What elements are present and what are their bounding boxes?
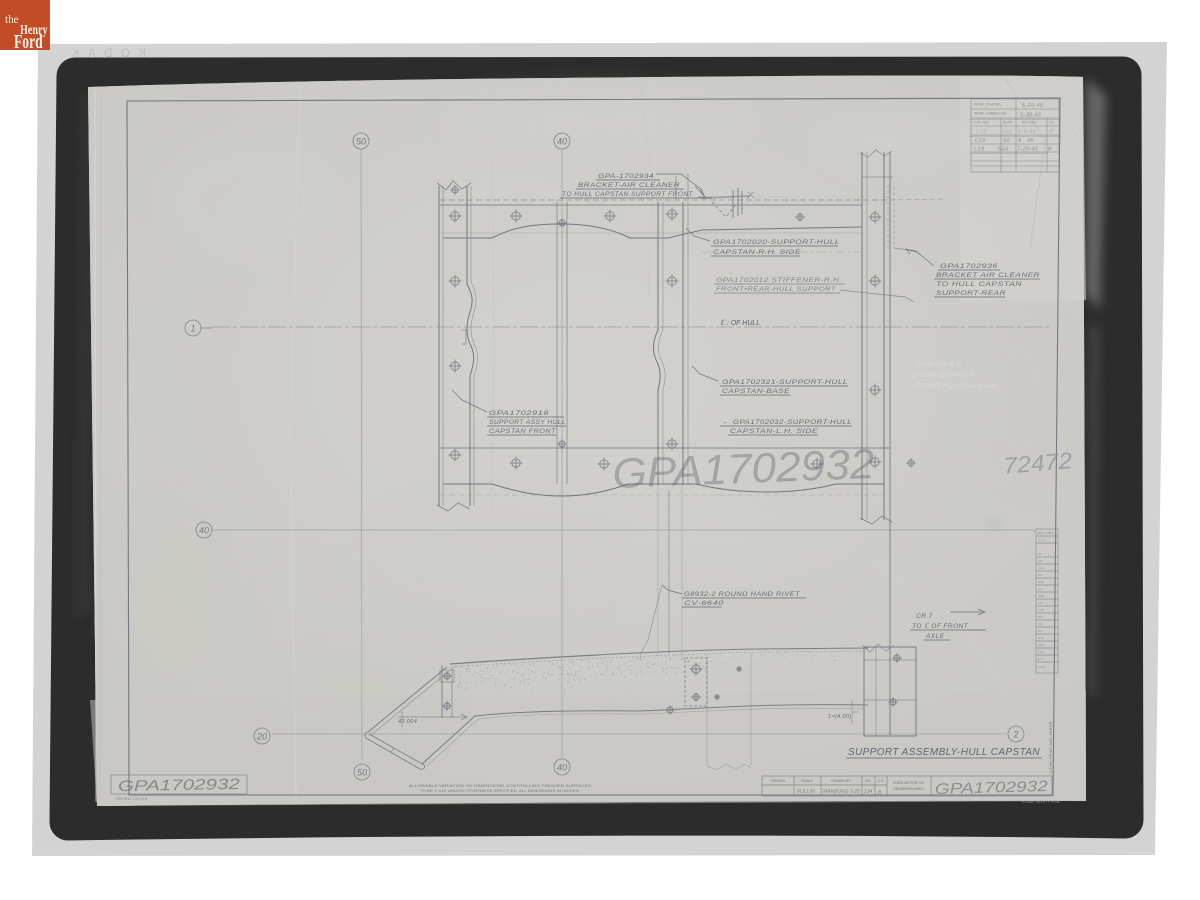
svg-text:SUPPORT ASSY HULL: SUPPORT ASSY HULL: [489, 419, 566, 426]
svg-text:9-14: 9-14: [1038, 636, 1044, 640]
svg-text:GPA 9012 1-20-45-R: GPA 9012 1-20-45-R: [116, 797, 148, 801]
svg-text:BRACKET AIR CLEANER: BRACKET AIR CLEANER: [936, 272, 1040, 279]
svg-text:50: 50: [357, 768, 367, 778]
svg-text:7-20-45: 7-20-45: [1017, 147, 1039, 153]
svg-text:GPA1702020-SUPPORT-HULL: GPA1702020-SUPPORT-HULL: [713, 239, 840, 246]
svg-text:522: 522: [1003, 129, 1014, 135]
svg-text:20: 20: [256, 732, 267, 742]
svg-text:CR.7: CR.7: [916, 613, 933, 620]
svg-text:← GPA1702032-SUPPORT-HULL: ← GPA1702032-SUPPORT-HULL: [722, 419, 852, 426]
svg-text:TO HULL CAPSTAN: TO HULL CAPSTAN: [936, 281, 1022, 288]
svg-text:50: 50: [356, 137, 366, 147]
svg-text:12-7: 12-7: [1038, 657, 1044, 661]
svg-text:5-25: 5-25: [1038, 580, 1044, 584]
svg-text:2: 2: [1012, 730, 1018, 740]
svg-text:L19: L19: [976, 129, 986, 135]
svg-text:SUPPORT-REAR: SUPPORT-REAR: [936, 290, 1006, 297]
svg-text:CK.: CK.: [1049, 121, 1055, 125]
svg-text:GPA-1702934: GPA-1702934: [598, 173, 654, 180]
svg-text:GPA1702 S-R: GPA1702 S-R: [916, 361, 962, 368]
svg-text:36: 36: [1038, 552, 1042, 556]
svg-text:5-9: 5-9: [1038, 573, 1043, 577]
svg-text:TO BE ± .010 UNLESS OTHERWISE: TO BE ± .010 UNLESS OTHERWISE SPECIFIED.…: [420, 789, 580, 793]
svg-text:BRACKET-AIR CLEANER: BRACKET-AIR CLEANER: [578, 182, 680, 189]
svg-text:CV-6640: CV-6640: [684, 600, 724, 607]
svg-text:5-30-45: 5-30-45: [1020, 113, 1042, 119]
svg-text:CAPSTAN-L.H. SIDE: CAPSTAN-L.H. SIDE: [730, 428, 818, 435]
svg-text:40: 40: [557, 137, 567, 147]
svg-text:GPA1702932: GPA1702932: [935, 778, 1049, 798]
svg-text:7-20: 7-20: [1038, 608, 1044, 612]
svg-text:5-25-45: 5-25-45: [1022, 103, 1044, 109]
svg-text:DRAWN BY: DRAWN BY: [831, 779, 851, 783]
svg-text:6-9-45: 6-9-45: [1018, 129, 1037, 135]
svg-text:1≈(4.00): 1≈(4.00): [828, 714, 852, 720]
svg-text:1: 1: [190, 324, 195, 334]
svg-text:B: B: [1048, 147, 1052, 153]
svg-text:REV. DATE: REV. DATE: [1038, 531, 1053, 535]
svg-text:SCALE: SCALE: [801, 779, 813, 783]
svg-text:STEAM SUPPORT: STEAM SUPPORT: [912, 372, 974, 379]
svg-text:CAPSTAN-R.H. SIDE: CAPSTAN-R.H. SIDE: [713, 249, 801, 256]
svg-text:AXLE: AXLE: [925, 633, 945, 640]
svg-text:FULL/M: FULL/M: [797, 789, 816, 795]
svg-text:ALLOWABLE VARIATION ON DIMENSI: ALLOWABLE VARIATION ON DIMENSIONS CONTRO…: [409, 784, 592, 788]
svg-text:GPA1702321-SUPPORT-HULL: GPA1702321-SUPPORT-HULL: [722, 379, 848, 386]
svg-text:WORK COMPLETED: WORK COMPLETED: [974, 112, 1007, 116]
svg-text:42.004: 42.004: [398, 719, 417, 725]
svg-text:TO HULL CAPSTAN SUPPORT FRONT: TO HULL CAPSTAN SUPPORT FRONT: [562, 191, 694, 198]
svg-text:FRONT HULL CAPSTAN: FRONT HULL CAPSTAN: [916, 383, 997, 390]
svg-text:KODAK SAFETY FILM: KODAK SAFETY FILM: [1022, 800, 1060, 804]
svg-text:1-4-5: 1-4-5: [1038, 665, 1045, 669]
svg-text:6-30: 6-30: [1038, 594, 1044, 598]
svg-text:R: R: [1049, 129, 1053, 135]
svg-text:CHG. REF: CHG. REF: [973, 121, 989, 125]
svg-text:GPA1702936: GPA1702936: [940, 263, 998, 270]
svg-text:ℂ : OF HULL: ℂ : OF HULL: [720, 319, 760, 327]
svg-text:134: 134: [864, 789, 873, 795]
svg-text:L19: L19: [974, 147, 984, 153]
svg-text:LITHO•PRINT ANN ARBOR: LITHO•PRINT ANN ARBOR: [1049, 721, 1053, 773]
svg-text:GPA1702918: GPA1702918: [489, 410, 549, 417]
svg-text:9-1: 9-1: [1038, 629, 1043, 633]
svg-text:CAPSTAN-BASE: CAPSTAN-BASE: [722, 388, 790, 395]
svg-text:CH.: CH.: [865, 779, 871, 783]
svg-text:DEARBORN MICH.: DEARBORN MICH.: [893, 787, 925, 791]
svg-text:L19: L19: [975, 138, 985, 144]
svg-text:GPA1702932: GPA1702932: [118, 776, 241, 795]
svg-text:7-8: 7-8: [1038, 601, 1043, 605]
svg-text:11-2: 11-2: [1038, 650, 1044, 654]
svg-text:G8932-2 ROUND HAND RIVET: G8932-2 ROUND HAND RIVET: [684, 591, 801, 598]
svg-text:MARBURG 5-25: MARBURG 5-25: [823, 789, 860, 795]
svg-text:4-12: 4-12: [1038, 566, 1044, 570]
svg-text:40: 40: [199, 526, 209, 536]
svg-text:CAPSTAN FRONT: CAPSTAN FRONT: [489, 428, 557, 435]
svg-text:FORD MOTOR CO.: FORD MOTOR CO.: [893, 781, 925, 785]
svg-text:52: 52: [1003, 138, 1010, 144]
svg-text:6-9: 6-9: [1038, 587, 1043, 591]
svg-text:GPA1702012 STIFFENER-R.H.: GPA1702012 STIFFENER-R.H.: [716, 277, 842, 284]
svg-text:8-9: 8-9: [1038, 622, 1043, 626]
svg-text:C.K.: C.K.: [878, 779, 885, 783]
svg-text:DESIGN: DESIGN: [771, 779, 785, 783]
svg-text:8-2: 8-2: [1038, 615, 1043, 619]
svg-text:SUPPORT ASSEMBLY-HULL CAPSTAN: SUPPORT ASSEMBLY-HULL CAPSTAN: [848, 747, 1040, 758]
svg-text:10-5: 10-5: [1038, 643, 1044, 647]
svg-text:40: 40: [557, 763, 567, 773]
svg-text:TO ℂ OF FRONT: TO ℂ OF FRONT: [912, 623, 969, 630]
svg-text:SUPR.: SUPR.: [1003, 121, 1013, 125]
svg-text:2-7-4: 2-7-4: [1038, 538, 1045, 542]
svg-text:4 45: 4 45: [1018, 138, 1034, 144]
svg-text:GPA1702932: GPA1702932: [612, 440, 876, 497]
svg-text:534: 534: [998, 147, 1008, 153]
svg-text:3-8: 3-8: [1038, 559, 1043, 563]
svg-text:FRONT•REAR-HULL SUPPORT: FRONT•REAR-HULL SUPPORT: [716, 286, 837, 293]
svg-text:REVISED: REVISED: [1022, 121, 1037, 125]
svg-text:WORK STARTED: WORK STARTED: [974, 103, 1002, 107]
